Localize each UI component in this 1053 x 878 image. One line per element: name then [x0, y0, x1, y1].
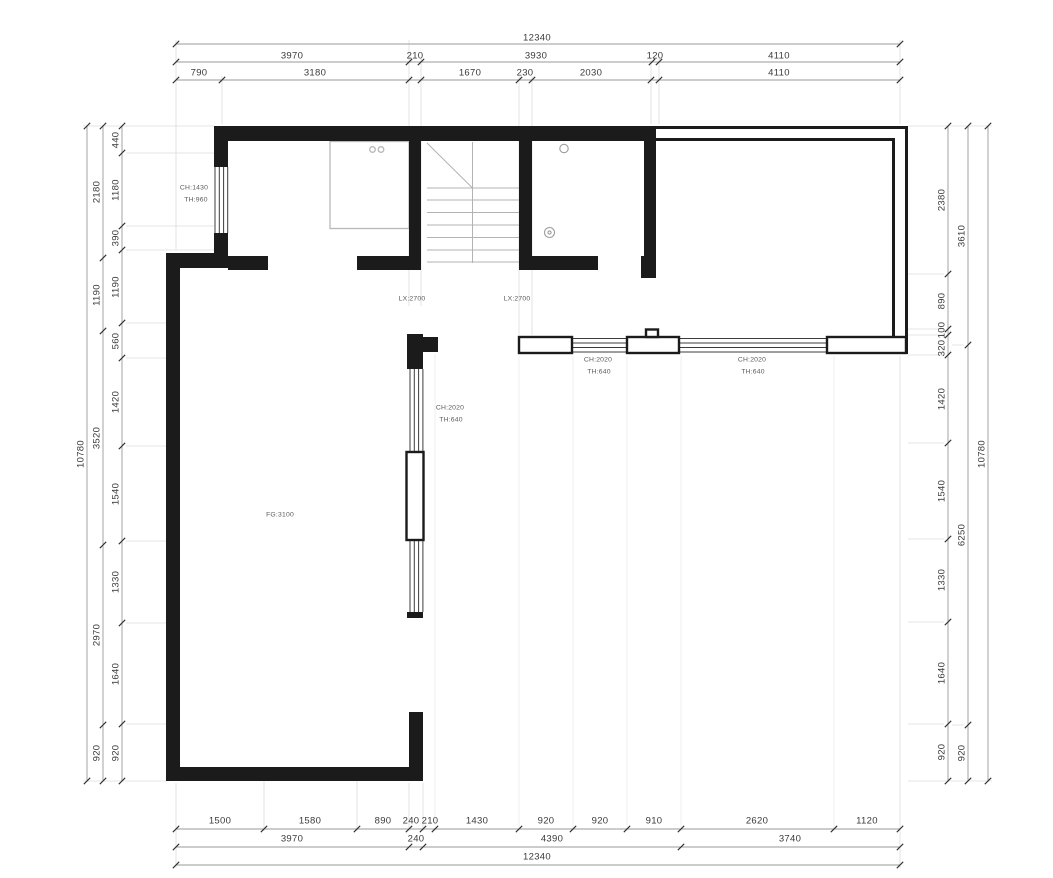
burner-icon	[370, 147, 376, 153]
floor-plan-drawing	[0, 0, 1053, 878]
drain-icon	[548, 231, 551, 234]
wall-piers	[407, 330, 907, 541]
kitchen-counter	[330, 142, 409, 229]
bathroom-fixtures	[545, 144, 569, 237]
dimension-lines	[87, 44, 988, 865]
floor-plan-canvas: 1234039702103930120411079031801670230203…	[0, 0, 1053, 878]
burner-icon	[378, 147, 384, 153]
drain-icon	[545, 228, 555, 238]
stairs	[427, 142, 519, 263]
drain-icon	[560, 144, 568, 152]
walls	[166, 126, 908, 781]
